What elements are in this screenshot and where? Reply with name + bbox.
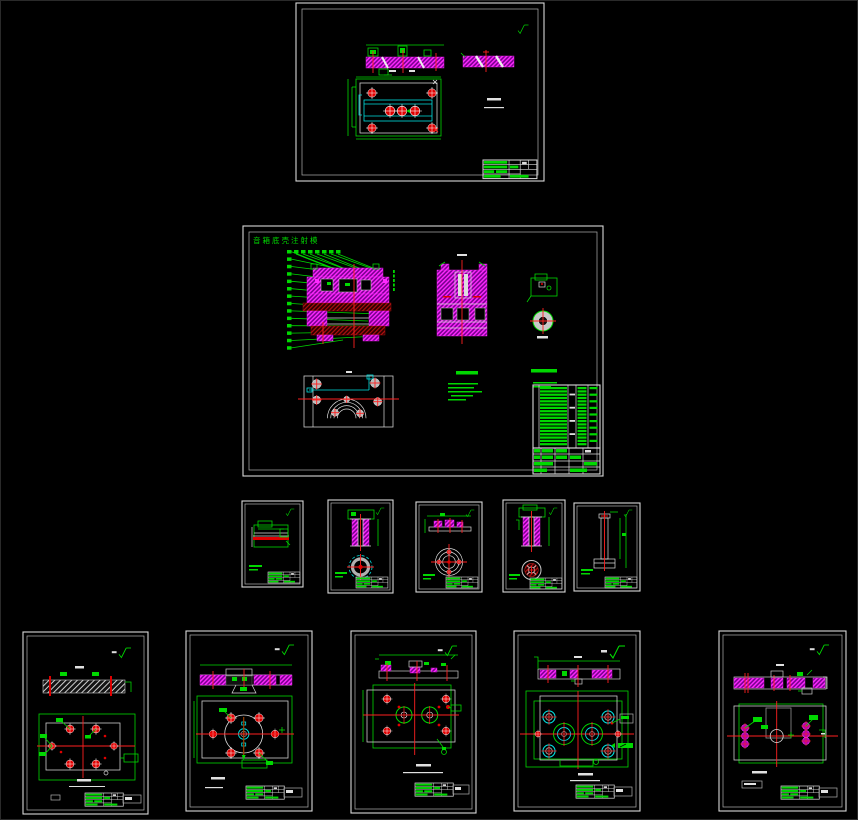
view-end: [522, 561, 541, 580]
drawing-title: 音箱底壳注射模: [253, 235, 320, 245]
drawing-space: 音箱底壳注射模: [0, 0, 858, 820]
view-mold-vertical-section: [437, 254, 487, 344]
cad-canvas[interactable]: 音箱底壳注射模: [0, 0, 858, 820]
